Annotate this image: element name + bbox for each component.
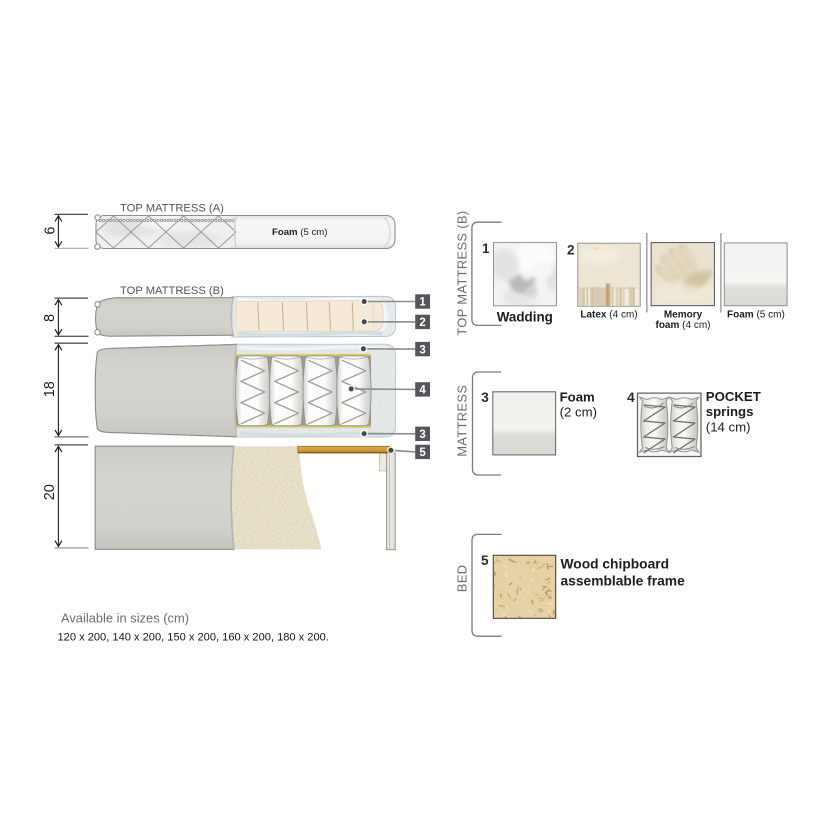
svg-text:1: 1 [482,241,490,256]
svg-text:TOP MATTRESS (B): TOP MATTRESS (B) [454,210,469,335]
svg-text:Wood chipboard: Wood chipboard [561,556,670,571]
svg-text:18: 18 [42,381,58,397]
svg-text:assemblable frame: assemblable frame [561,573,686,588]
svg-text:5: 5 [481,553,489,568]
svg-text:BED: BED [454,565,469,593]
svg-text:TOP MATTRESS (A): TOP MATTRESS (A) [120,202,224,214]
svg-text:Foam (5 cm): Foam (5 cm) [272,227,327,238]
svg-text:TOP MATTRESS (B): TOP MATTRESS (B) [120,285,224,297]
svg-text:Foam (5 cm): Foam (5 cm) [727,310,785,321]
svg-text:Latex (4 cm): Latex (4 cm) [580,310,637,321]
svg-text:Available in sizes (cm): Available in sizes (cm) [61,611,189,626]
svg-text:20: 20 [42,484,58,500]
svg-text:8: 8 [42,314,58,322]
svg-text:Foam: Foam [560,390,595,405]
svg-text:4: 4 [419,385,426,397]
svg-text:Memory: Memory [664,310,703,321]
svg-text:Wadding: Wadding [497,310,553,325]
svg-text:MATTRESS: MATTRESS [454,385,469,457]
svg-text:6: 6 [42,227,58,235]
svg-text:5: 5 [419,447,426,459]
svg-text:3: 3 [481,390,489,405]
svg-text:(14 cm): (14 cm) [706,419,751,434]
svg-text:120 x 200, 140 x 200, 150 x 20: 120 x 200, 140 x 200, 150 x 200, 160 x 2… [58,631,329,643]
svg-text:POCKET: POCKET [706,389,761,404]
svg-text:3: 3 [419,429,425,441]
svg-text:3: 3 [419,344,425,356]
svg-text:(2 cm): (2 cm) [560,405,597,420]
svg-text:2: 2 [567,243,575,258]
svg-text:1: 1 [419,297,426,309]
svg-text:4: 4 [627,390,635,405]
svg-text:foam (4 cm): foam (4 cm) [655,320,710,331]
svg-text:2: 2 [419,317,425,329]
svg-text:springs: springs [706,404,754,419]
